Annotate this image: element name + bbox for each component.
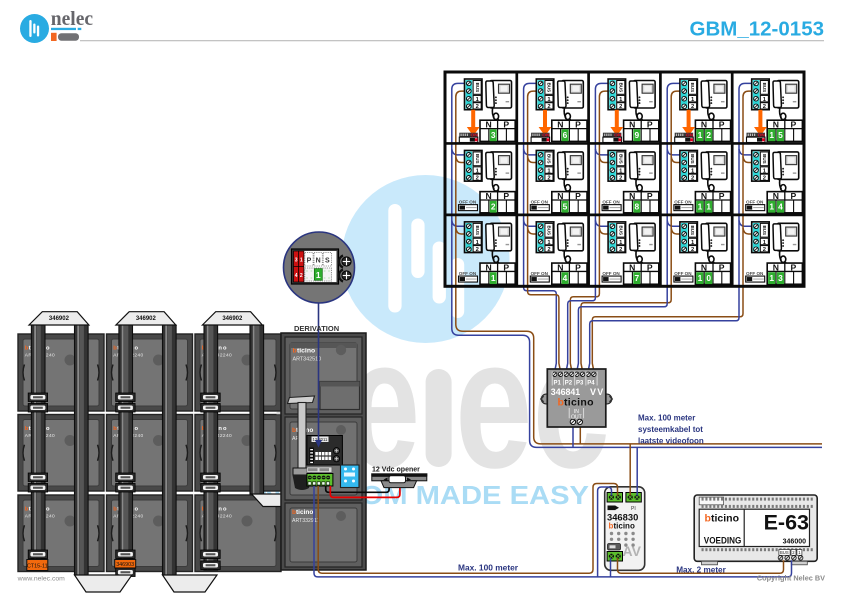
svg-text:Max. 2 meter: Max. 2 meter: [676, 565, 726, 574]
svg-text:DERIVATION: DERIVATION: [294, 324, 339, 333]
svg-text:N: N: [701, 120, 707, 130]
svg-text:OFF ON: OFF ON: [746, 200, 764, 205]
svg-text:N: N: [485, 191, 491, 201]
svg-text:2: 2: [476, 247, 479, 253]
svg-text:6: 6: [563, 130, 568, 140]
svg-text:P: P: [503, 191, 509, 201]
svg-text:BUS: BUS: [690, 154, 695, 164]
svg-text:346903: 346903: [116, 562, 134, 568]
svg-text:1: 1: [769, 202, 774, 212]
svg-text:BUS: BUS: [547, 154, 552, 164]
svg-text:www.nelec.com: www.nelec.com: [17, 576, 66, 583]
svg-text:346902: 346902: [222, 316, 243, 322]
svg-text:ticino: ticino: [296, 509, 313, 516]
svg-text:N: N: [701, 191, 707, 201]
svg-text:b: b: [558, 397, 564, 409]
svg-text:E-63: E-63: [764, 511, 809, 535]
svg-text:P: P: [503, 120, 509, 130]
svg-text:N: N: [629, 262, 635, 272]
svg-text:2: 2: [476, 104, 479, 110]
svg-text:N: N: [773, 191, 779, 201]
svg-text:BUS: BUS: [475, 83, 480, 93]
svg-text:N: N: [773, 262, 779, 272]
svg-text:P: P: [575, 120, 581, 130]
svg-text:1: 1: [300, 258, 303, 264]
svg-text:4: 4: [778, 202, 783, 212]
svg-text:ticino: ticino: [614, 522, 635, 531]
svg-text:OFF ON: OFF ON: [459, 271, 477, 276]
svg-text:Max. 100 meter: Max. 100 meter: [458, 563, 519, 573]
svg-text:2: 2: [706, 130, 711, 140]
svg-text:BUS: BUS: [475, 154, 480, 164]
svg-text:P: P: [719, 120, 725, 130]
svg-text:P4: P4: [587, 381, 595, 387]
svg-text:AV: AV: [623, 543, 642, 559]
svg-text:nelec: nelec: [51, 9, 94, 30]
svg-text:1: 1: [769, 273, 774, 283]
svg-text:BUS: BUS: [475, 226, 480, 236]
svg-text:P: P: [647, 191, 653, 201]
svg-text:N: N: [485, 262, 491, 272]
svg-text:Copyright Nelec BV: Copyright Nelec BV: [757, 573, 825, 582]
svg-text:P: P: [307, 258, 312, 265]
svg-text:3: 3: [295, 258, 298, 264]
svg-text:2: 2: [300, 273, 303, 279]
svg-text:OFF ON: OFF ON: [746, 271, 764, 276]
svg-text:b: b: [705, 513, 711, 525]
svg-text:GBM_12-0153: GBM_12-0153: [690, 18, 824, 41]
svg-text:ART342510: ART342510: [293, 357, 322, 363]
svg-text:OFF ON: OFF ON: [602, 271, 620, 276]
svg-text:N: N: [316, 258, 321, 265]
svg-text:P3: P3: [576, 381, 584, 387]
svg-text:Max. 100 meter: Max. 100 meter: [638, 414, 695, 423]
svg-text:2: 2: [691, 104, 694, 110]
svg-text:9: 9: [634, 130, 639, 140]
svg-text:P: P: [791, 120, 797, 130]
svg-text:ticino: ticino: [297, 348, 315, 355]
svg-text:ART332911: ART332911: [292, 518, 319, 524]
svg-text:0: 0: [706, 273, 711, 283]
svg-text:8: 8: [634, 202, 639, 212]
svg-text:P2: P2: [565, 381, 573, 387]
svg-text:systeemkabel tot: systeemkabel tot: [638, 425, 703, 434]
svg-text:N: N: [557, 120, 563, 130]
svg-text:BUS: BUS: [618, 226, 623, 236]
svg-text:4: 4: [295, 273, 298, 279]
svg-text:OFF ON: OFF ON: [674, 200, 692, 205]
svg-text:2: 2: [547, 104, 550, 110]
svg-text:N: N: [629, 120, 635, 130]
svg-text:BUS: BUS: [690, 226, 695, 236]
svg-text:1: 1: [698, 202, 703, 212]
svg-text:P: P: [647, 262, 653, 272]
svg-text:1: 1: [698, 130, 703, 140]
svg-text:N: N: [557, 191, 563, 201]
svg-text:P: P: [575, 262, 581, 272]
svg-text:BUS: BUS: [618, 154, 623, 164]
svg-text:2: 2: [691, 176, 694, 182]
svg-text:S: S: [325, 258, 330, 265]
svg-text:CT15-11: CT15-11: [27, 564, 48, 570]
svg-text:P: P: [575, 191, 581, 201]
svg-text:BUS: BUS: [762, 83, 767, 93]
svg-text:BUS: BUS: [618, 83, 623, 93]
svg-text:2: 2: [619, 104, 622, 110]
svg-text:1: 1: [316, 270, 321, 280]
svg-text:4: 4: [563, 273, 568, 283]
svg-text:2: 2: [547, 247, 550, 253]
svg-text:2: 2: [763, 104, 766, 110]
svg-text:OFF ON: OFF ON: [459, 200, 477, 205]
svg-text:2: 2: [763, 247, 766, 253]
svg-text:2: 2: [476, 176, 479, 182]
svg-text:OFF ON: OFF ON: [602, 200, 620, 205]
svg-text:N: N: [773, 120, 779, 130]
svg-text:OFF ON: OFF ON: [531, 271, 549, 276]
svg-text:2: 2: [491, 202, 496, 212]
svg-text:P: P: [647, 120, 653, 130]
svg-text:BUS: BUS: [762, 154, 767, 164]
svg-text:BUS: BUS: [547, 83, 552, 93]
svg-text:laatste videofoon: laatste videofoon: [638, 437, 704, 446]
svg-text:1: 1: [491, 273, 496, 283]
svg-text:2: 2: [619, 247, 622, 253]
svg-text:BUS: BUS: [690, 83, 695, 93]
svg-text:P: P: [503, 262, 509, 272]
svg-text:N: N: [557, 262, 563, 272]
svg-text:1: 1: [698, 273, 703, 283]
svg-text:3: 3: [778, 273, 783, 283]
svg-text:2: 2: [763, 176, 766, 182]
svg-text:346902: 346902: [136, 316, 157, 322]
svg-text:P: P: [719, 191, 725, 201]
svg-text:VV: VV: [590, 387, 604, 397]
svg-text:3: 3: [491, 130, 496, 140]
svg-text:7: 7: [634, 273, 639, 283]
svg-text:1: 1: [769, 130, 774, 140]
svg-text:BUS: BUS: [762, 226, 767, 236]
svg-text:5: 5: [778, 130, 783, 140]
svg-text:2: 2: [691, 247, 694, 253]
svg-text:P: P: [791, 262, 797, 272]
svg-text:1: 1: [706, 202, 711, 212]
svg-text:P: P: [791, 191, 797, 201]
svg-text:ticino: ticino: [711, 513, 739, 525]
svg-text:P1: P1: [554, 381, 562, 387]
svg-text:5: 5: [563, 202, 568, 212]
svg-text:OFF ON: OFF ON: [674, 271, 692, 276]
svg-text:P: P: [719, 262, 725, 272]
svg-text:N: N: [629, 191, 635, 201]
svg-text:346000: 346000: [783, 539, 806, 546]
svg-text:ticino: ticino: [564, 397, 594, 409]
svg-text:N: N: [701, 262, 707, 272]
svg-text:BUS: BUS: [780, 550, 789, 555]
svg-text:OFF ON: OFF ON: [531, 200, 549, 205]
svg-text:346902: 346902: [49, 316, 70, 322]
svg-text:VOEDING: VOEDING: [704, 536, 742, 546]
svg-text:12 Vdc opener: 12 Vdc opener: [372, 467, 420, 474]
svg-text:BUS: BUS: [547, 226, 552, 236]
svg-text:2: 2: [547, 176, 550, 182]
svg-text:2: 2: [619, 176, 622, 182]
svg-text:N: N: [485, 120, 491, 130]
